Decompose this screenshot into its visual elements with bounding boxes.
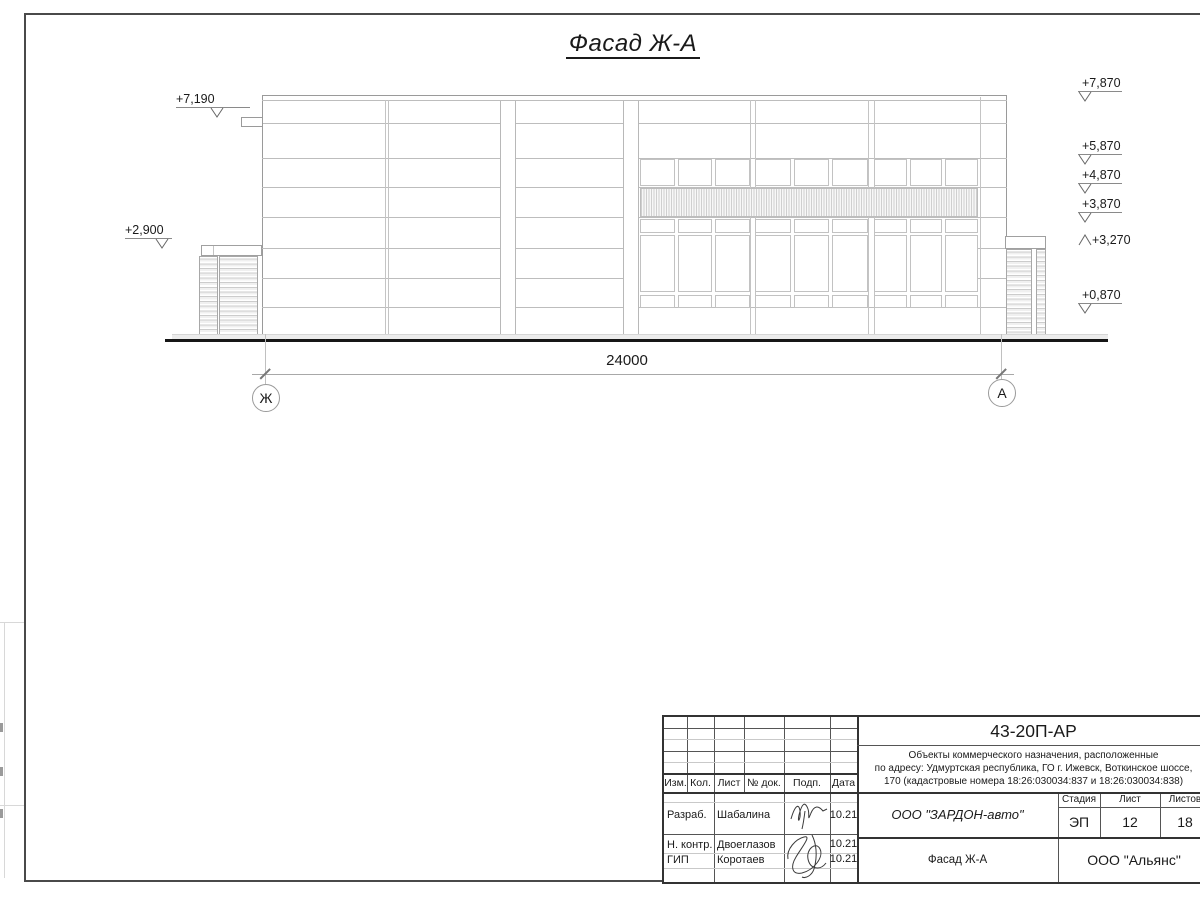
- window-group: [755, 295, 868, 308]
- window-pane: [640, 219, 675, 233]
- window-pane: [910, 235, 943, 293]
- tb-sheets-value: 18: [1160, 807, 1200, 837]
- elevation-arrow-icon: [210, 107, 224, 118]
- elevation-label: +2,900: [125, 223, 172, 239]
- canopy: [241, 117, 263, 127]
- tb-grid-line: [664, 728, 857, 729]
- elevation-label: +7,190: [176, 92, 250, 108]
- window-pane: [678, 235, 713, 293]
- elevation-label: +0,870: [1078, 288, 1122, 304]
- elevation-mark: +5,870: [1078, 139, 1122, 155]
- tb-date: 10.21: [830, 852, 857, 866]
- elevation-label: +7,870: [1078, 76, 1122, 92]
- window-pane: [910, 295, 943, 308]
- tb-header-izm: Изм.: [664, 773, 687, 792]
- axis-label: А: [997, 385, 1006, 401]
- window-pane: [794, 219, 830, 233]
- left-tower-cap: [201, 245, 262, 256]
- window-pane: [678, 159, 713, 187]
- tb-header-podp: Подп.: [784, 773, 830, 792]
- tb-sheets-header: Листов: [1160, 792, 1200, 807]
- window-pane: [874, 159, 907, 187]
- elevation-label: +4,870: [1078, 168, 1122, 184]
- tb-grid-line: [664, 739, 857, 740]
- window-pane: [755, 235, 791, 293]
- elevation-arrow-icon: [1078, 154, 1092, 165]
- title-block: 43-20П-АР Объекты коммерческого назначен…: [662, 715, 1200, 884]
- tb-project-line2: по адресу: Удмуртская республика, ГО г. …: [875, 762, 1193, 775]
- elevation-mark: +3,270: [1078, 233, 1132, 248]
- tb-header-list: Лист: [714, 773, 744, 792]
- window-pane: [794, 295, 830, 308]
- axis-circle-zh: Ж: [252, 384, 280, 412]
- window-group: [640, 235, 750, 293]
- margin-label-stub: [0, 809, 3, 818]
- window-pane: [910, 219, 943, 233]
- elevation-mark: +3,870: [1078, 197, 1122, 213]
- elevation-mark: +2,900: [125, 223, 172, 239]
- elevation-mark: +4,870: [1078, 168, 1122, 184]
- left-tower-cap-joint: [213, 246, 214, 255]
- tb-name: Двоеглазов: [717, 838, 783, 852]
- window-pane: [715, 219, 750, 233]
- window-group: [640, 295, 750, 308]
- elevation-arrow-icon: [1078, 212, 1092, 223]
- signature-icon: [782, 829, 830, 881]
- margin-divider: [0, 805, 24, 806]
- window-pane: [678, 219, 713, 233]
- window-pane: [945, 235, 978, 293]
- window-pane: [945, 159, 978, 187]
- facade-joint: [750, 100, 751, 339]
- elevation-arrow-icon: [155, 238, 169, 249]
- window-group: [755, 235, 868, 293]
- floor-line: [978, 278, 1007, 279]
- elevation-mark: +7,190: [176, 92, 250, 108]
- left-tower-louvers: [199, 256, 218, 339]
- window-pane: [794, 159, 830, 187]
- floor-line: [978, 248, 1007, 249]
- facade-joint: [385, 100, 386, 339]
- tb-sheet-title: Фасад Ж-А: [857, 837, 1058, 882]
- elevation-mark: +0,870: [1078, 288, 1122, 304]
- left-tower-louvers: [219, 256, 258, 339]
- window-group: [874, 159, 978, 187]
- elevation-arrow-icon: [1078, 91, 1092, 102]
- window-pane: [832, 159, 868, 187]
- tb-grid-line: [664, 762, 857, 763]
- window-pane: [715, 159, 750, 187]
- signature-icon: [787, 797, 829, 831]
- floor-line: [262, 278, 623, 279]
- tb-organization: ООО "Альянс": [1058, 837, 1200, 882]
- drawing-sheet: Фасад Ж-А: [0, 0, 1200, 900]
- right-tower-louvers: [1006, 249, 1032, 339]
- window-pane: [715, 235, 750, 293]
- dimension-label: 24000: [577, 352, 677, 369]
- facade-joint: [868, 100, 869, 339]
- elevation-label: +5,870: [1078, 139, 1122, 155]
- window-pane: [874, 219, 907, 233]
- tb-date: 10.21: [830, 837, 857, 851]
- tb-project-line1: Объекты коммерческого назначения, распол…: [909, 749, 1159, 762]
- elevation-arrow-icon: [1078, 303, 1092, 314]
- window-group: [755, 159, 868, 187]
- window-pane: [755, 159, 791, 187]
- tb-client: ООО "ЗАРДОН-авто": [857, 792, 1058, 837]
- pilaster: [500, 101, 516, 334]
- tb-header-kol: Кол.: [687, 773, 714, 792]
- window-pane: [678, 295, 713, 308]
- tb-stage-value: ЭП: [1058, 807, 1100, 837]
- axis-extension-line: [265, 334, 266, 384]
- ground-line: [165, 339, 1108, 342]
- window-pane: [640, 295, 675, 308]
- margin-divider: [0, 622, 24, 623]
- window-pane: [640, 235, 675, 293]
- window-pane: [832, 219, 868, 233]
- window-group: [874, 295, 978, 308]
- tb-project-description: Объекты коммерческого назначения, распол…: [857, 745, 1200, 792]
- tb-header-data: Дата: [830, 773, 857, 792]
- tb-header-ndok: № док.: [744, 773, 784, 792]
- window-pane: [794, 235, 830, 293]
- right-tower-cap: [1005, 236, 1046, 249]
- tb-project-line3: 170 (кадастровые номера 18:26:030034:837…: [884, 775, 1183, 788]
- elevation-arrow-up-icon: [1078, 234, 1092, 246]
- window-group: [640, 159, 750, 187]
- right-tower-louvers: [1036, 249, 1046, 339]
- tb-date: 10.21: [830, 808, 857, 822]
- louver-band: [640, 188, 978, 217]
- dimension-line: [252, 374, 1014, 375]
- window-pane: [640, 159, 675, 187]
- elevation-label: +3,870: [1078, 197, 1122, 213]
- elevation-arrow-icon: [1078, 183, 1092, 194]
- elevation-mark: +7,870: [1078, 76, 1122, 92]
- window-pane: [874, 295, 907, 308]
- window-pane: [832, 295, 868, 308]
- axis-circle-a: А: [988, 379, 1016, 407]
- tb-name: Коротаев: [717, 853, 783, 867]
- tb-sheet-value: 12: [1100, 807, 1160, 837]
- window-pane: [945, 219, 978, 233]
- tb-role: Разраб.: [667, 808, 713, 822]
- axis-label: Ж: [260, 390, 273, 406]
- tb-doc-code: 43-20П-АР: [857, 717, 1200, 745]
- facade-joint: [388, 100, 389, 339]
- window-pane: [755, 295, 791, 308]
- tb-role: Н. контр.: [667, 838, 713, 852]
- window-pane: [715, 295, 750, 308]
- window-pane: [832, 235, 868, 293]
- tb-grid-line: [664, 751, 857, 752]
- facade-joint: [980, 97, 981, 339]
- window-pane: [755, 219, 791, 233]
- tb-stage-header: Стадия: [1058, 792, 1100, 807]
- tb-sheet-header: Лист: [1100, 792, 1160, 807]
- pilaster: [623, 101, 639, 334]
- window-group: [755, 219, 868, 233]
- margin-label-stub: [0, 767, 3, 776]
- tb-grid-line: [714, 717, 715, 882]
- margin-column-line: [4, 622, 5, 878]
- floor-line: [262, 248, 623, 249]
- window-pane: [874, 235, 907, 293]
- window-pane: [910, 159, 943, 187]
- window-group: [874, 219, 978, 233]
- tb-name: Шабалина: [717, 808, 783, 822]
- margin-label-stub: [0, 723, 3, 732]
- tb-role: ГИП: [667, 853, 713, 867]
- window-pane: [945, 295, 978, 308]
- window-group: [874, 235, 978, 293]
- window-group: [640, 219, 750, 233]
